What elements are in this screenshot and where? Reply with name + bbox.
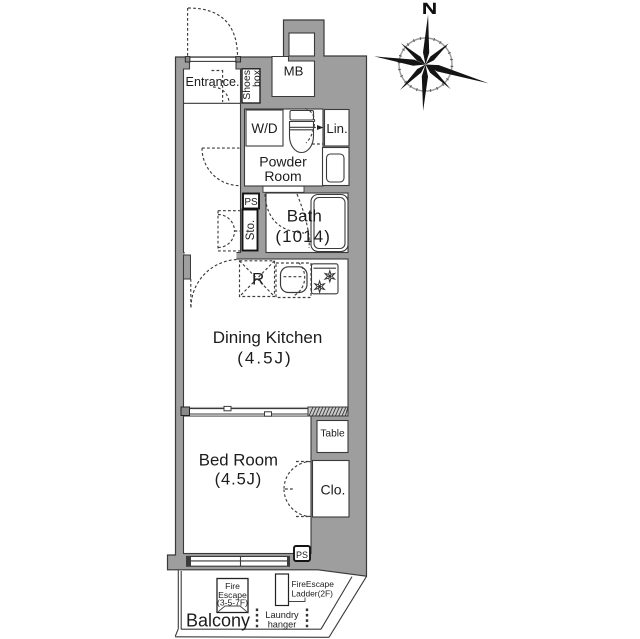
svg-text:W/D: W/D <box>251 121 277 136</box>
svg-text:FireEscape: FireEscape <box>292 579 335 589</box>
svg-text:Laundry: Laundry <box>265 610 299 620</box>
svg-text:Clo.: Clo. <box>321 482 346 498</box>
svg-text:Room: Room <box>264 168 301 184</box>
svg-text:(1014): (1014) <box>275 227 331 246</box>
svg-text:Table: Table <box>320 429 345 440</box>
svg-text:Balcony: Balcony <box>186 611 250 631</box>
svg-text:Lin.: Lin. <box>326 121 347 136</box>
svg-text:PS: PS <box>296 550 308 560</box>
svg-text:MB: MB <box>284 63 304 78</box>
svg-text:(4.5J): (4.5J) <box>215 471 263 489</box>
svg-text:Dining Kitchen: Dining Kitchen <box>213 328 323 347</box>
svg-text:(4.5J): (4.5J) <box>237 349 292 368</box>
svg-text:hanger: hanger <box>268 620 297 630</box>
svg-text:Entrance.: Entrance. <box>186 75 240 89</box>
svg-text:PS: PS <box>244 197 258 208</box>
svg-text:Sto.: Sto. <box>245 220 257 240</box>
svg-text:(3-5-7F): (3-5-7F) <box>217 598 248 608</box>
svg-text:Bath: Bath <box>287 207 322 226</box>
svg-text:Bed Room: Bed Room <box>199 451 278 470</box>
svg-text:Ladder(2F): Ladder(2F) <box>292 589 334 599</box>
svg-text:R: R <box>252 270 264 289</box>
